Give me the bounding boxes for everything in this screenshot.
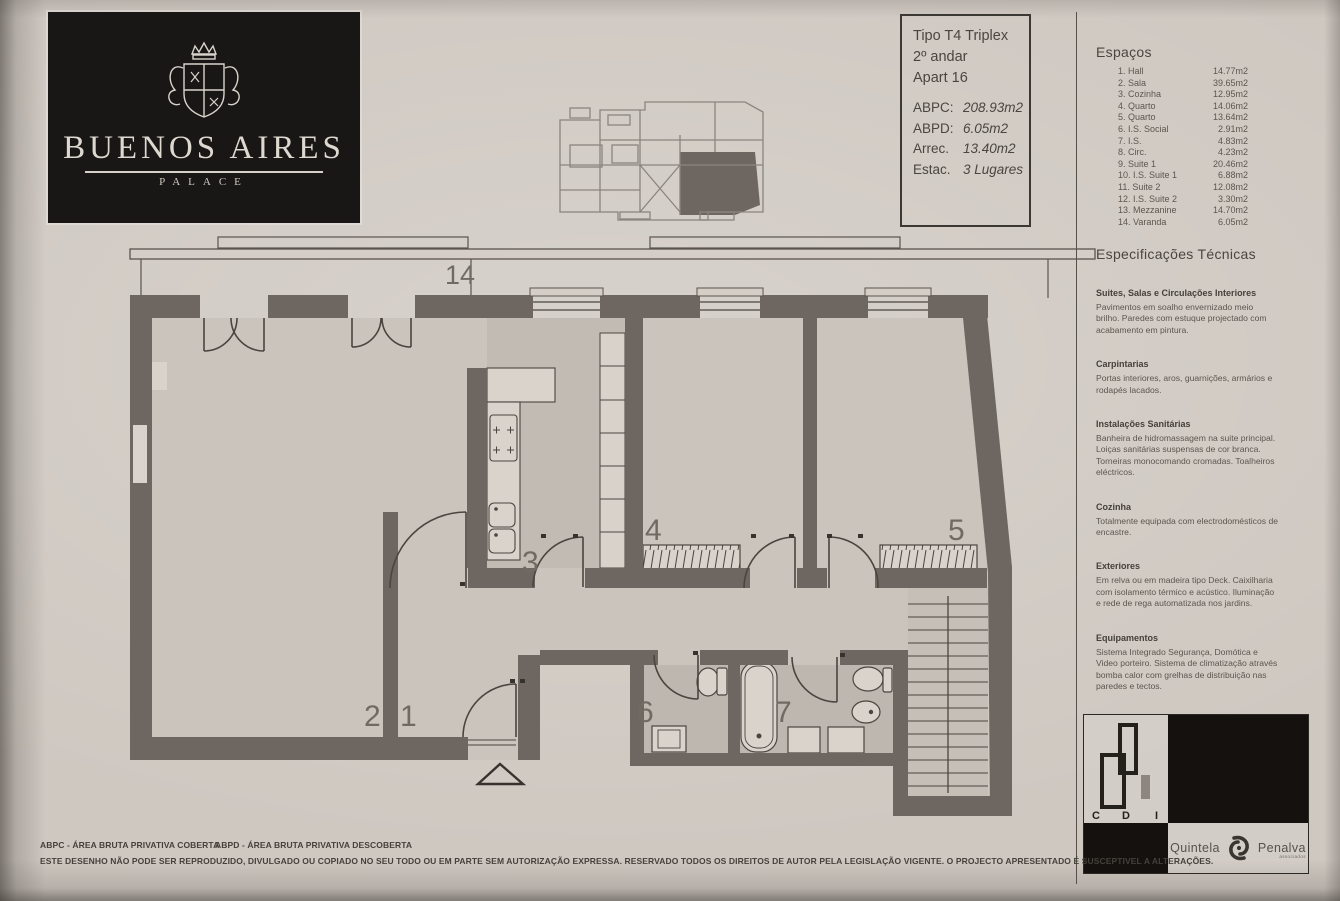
qp-subtext: associados — [1279, 854, 1306, 859]
key-plan — [560, 102, 763, 220]
brand-name: Buenos Aires — [48, 130, 360, 167]
room-label-cozinha: 3 — [522, 546, 539, 579]
room-label-quarto5: 5 — [948, 514, 965, 547]
space-row: 7. I.S.4.83m2 — [1118, 136, 1248, 148]
cdi-mark-icon: C D I — [1084, 715, 1168, 823]
room-label-hall: 1 — [400, 700, 417, 733]
bidet-icon — [852, 701, 880, 723]
svg-text:I: I — [1155, 810, 1158, 822]
room-label-quarto4: 4 — [645, 514, 662, 547]
room-label-sala: 2 — [364, 700, 381, 733]
crown-icon — [192, 43, 216, 54]
logo-grid-black-cell — [1168, 715, 1308, 823]
washbasin-icon — [788, 727, 820, 753]
svg-text:D: D — [1122, 810, 1130, 822]
abpc-definition: ABPC - ÁREA BRUTA PRIVATIVA COBERTA — [40, 840, 219, 850]
toilet-icon — [697, 668, 719, 696]
space-row: 2. Sala39.65m2 — [1118, 78, 1248, 90]
window-icon — [697, 288, 763, 310]
spec-section: Instalações Sanitárias Banheira de hidro… — [1096, 419, 1286, 479]
space-row: 13. Mezzanine14.70m2 — [1118, 205, 1248, 217]
copyright-notice: ESTE DESENHO NÃO PODE SER REPRODUZIDO, D… — [40, 856, 1213, 866]
scanned-floor-plan-sheet: 14 2 1 3 4 5 6 7 — [0, 0, 1340, 901]
window-icon — [865, 288, 931, 310]
logo-divider — [85, 171, 323, 173]
toilet-icon — [853, 667, 883, 691]
specs-title: Especificações Técnicas — [1096, 246, 1256, 262]
crest-icon — [144, 40, 264, 135]
windows — [530, 288, 931, 310]
spec-section: Equipamentos Sistema Integrado Segurança… — [1096, 633, 1286, 693]
space-row: 6. I.S. Social2.91m2 — [1118, 124, 1248, 136]
entrance-marker — [478, 764, 523, 784]
apartment-floor: 2º andar — [913, 47, 1029, 68]
window-icon — [530, 288, 603, 310]
metric-row: Arrec. 13.40m2 — [913, 139, 1029, 160]
space-row: 9. Suite 120.46m2 — [1118, 159, 1248, 171]
space-row: 12. I.S. Suite 23.30m2 — [1118, 194, 1248, 206]
buenos-aires-logo: Buenos Aires PALACE — [48, 12, 360, 223]
space-row: 1. Hall14.77m2 — [1118, 66, 1248, 78]
space-row: 8. Circ.4.23m2 — [1118, 147, 1248, 159]
balcony-varanda — [130, 237, 1095, 298]
specs-sections: Suites, Salas e Circulações Interiores P… — [1096, 288, 1286, 715]
metric-row: ABPD: 6.05m2 — [913, 119, 1029, 140]
abpd-definition: ABPD - ÁREA BRUTA PRIVATIVA DESCOBERTA — [215, 840, 412, 850]
spec-section: Suites, Salas e Circulações Interiores P… — [1096, 288, 1286, 336]
toilet-tank — [717, 668, 727, 695]
kitchen-tile-strip — [600, 333, 625, 568]
sink-icon — [489, 503, 515, 527]
area-metrics: ABPC: 208.93m2 ABPD: 6.05m2 Arrec. 13.40… — [913, 98, 1029, 180]
qp-left-text: Quintela — [1170, 841, 1220, 855]
qp-swirl-icon — [1226, 835, 1252, 861]
room-label-is7: 7 — [775, 696, 792, 729]
svg-text:C: C — [1092, 810, 1100, 822]
company-logos: C D I Quintela Penalva associados — [1083, 714, 1309, 874]
spaces-title: Espaços — [1096, 44, 1152, 60]
panel-divider — [1076, 12, 1077, 884]
space-row: 14. Varanda6.05m2 — [1118, 217, 1248, 229]
room-label-varanda: 14 — [445, 260, 475, 290]
balcony-railing — [218, 237, 468, 248]
balcony-railing — [650, 237, 900, 248]
space-row: 3. Cozinha12.95m2 — [1118, 89, 1248, 101]
spaces-list: 1. Hall14.77m2 2. Sala39.65m2 3. Cozinha… — [1118, 66, 1248, 228]
spec-section: Cozinha Totalmente equipada com electrod… — [1096, 502, 1286, 539]
apartment-type: Tipo T4 Triplex — [913, 26, 1029, 47]
sink-icon — [489, 529, 515, 553]
space-row: 11. Suite 212.08m2 — [1118, 182, 1248, 194]
apartment-info-box: Tipo T4 Triplex 2º andar Apart 16 ABPC: … — [900, 14, 1031, 227]
metric-row: Estac. 3 Lugares — [913, 160, 1029, 181]
toilet-tank — [883, 668, 892, 692]
room-floors — [152, 318, 988, 796]
spec-section: Carpintarias Portas interiores, aros, gu… — [1096, 359, 1286, 396]
brand-subtitle: PALACE — [48, 176, 360, 188]
qp-right-text: Penalva associados — [1258, 841, 1306, 855]
space-row: 4. Quarto14.06m2 — [1118, 101, 1248, 113]
space-row: 5. Quarto13.64m2 — [1118, 112, 1248, 124]
cdi-logo: C D I — [1084, 715, 1168, 823]
metric-row: ABPC: 208.93m2 — [913, 98, 1029, 119]
spec-section: Exteriores Em relva ou em madeira tipo D… — [1096, 561, 1286, 609]
apartment-number: Apart 16 — [913, 68, 1029, 89]
room-label-is6: 6 — [637, 696, 654, 729]
space-row: 10. I.S. Suite 16.88m2 — [1118, 170, 1248, 182]
washbasin-icon — [828, 727, 864, 753]
